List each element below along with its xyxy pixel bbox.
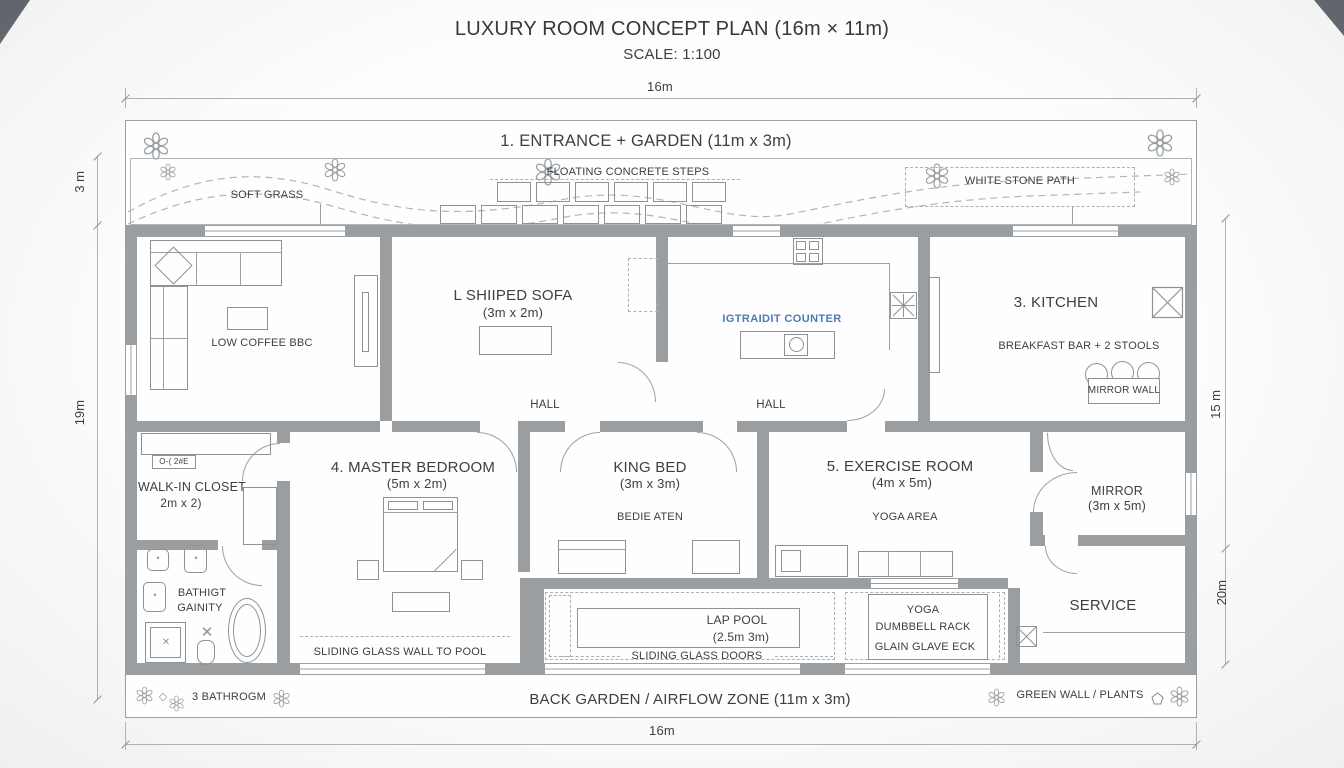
wall <box>520 578 544 663</box>
wall <box>125 663 300 675</box>
concrete-step <box>645 205 681 224</box>
service-title: SERVICE <box>1070 598 1137 615</box>
dim-line-left <box>97 156 98 700</box>
wall <box>125 225 137 345</box>
pentagon-icon <box>1151 692 1164 705</box>
photo-corner <box>0 0 30 44</box>
mirror-wall-label: MIRROR WALL <box>1088 385 1160 396</box>
dim-line-bottom <box>125 744 1197 745</box>
mirror-title: MIRROR <box>1091 485 1143 499</box>
column-x-icon <box>1016 626 1037 647</box>
leader-line <box>320 204 321 224</box>
wall <box>125 225 205 237</box>
back-garden-title: BACK GARDEN / AIRFLOW ZONE (11m x 3m) <box>529 692 850 709</box>
wall <box>125 395 137 675</box>
green-wall-label: GREEN WALL / PLANTS <box>1016 689 1143 701</box>
flower-icon <box>136 687 153 704</box>
wall <box>1185 225 1197 473</box>
pool-column <box>549 595 571 657</box>
bath-label-2: GAINITY <box>177 602 222 614</box>
bench-line <box>888 551 889 577</box>
flower-icon <box>1170 687 1189 706</box>
leader-line <box>1072 207 1073 225</box>
master-note: SLIDING GLASS WALL TO POOL <box>314 646 487 658</box>
window <box>871 578 958 589</box>
wall <box>380 225 392 421</box>
wall <box>737 421 847 432</box>
sink-basin <box>789 337 804 352</box>
master-title: 4. MASTER BEDROOM <box>331 460 495 477</box>
diamond-icon: ◇ <box>159 690 167 703</box>
drain-dot: • <box>156 553 159 563</box>
pool-title: LAP POOL <box>707 614 768 627</box>
stove-burner <box>796 253 806 262</box>
sofa-room-size: (3m x 2m) <box>483 306 543 320</box>
wall <box>518 432 530 572</box>
concrete-step <box>497 182 531 202</box>
stove-burner <box>809 253 819 262</box>
concrete-step <box>692 182 726 202</box>
flower-icon <box>1147 130 1173 156</box>
concrete-step <box>604 205 640 224</box>
wall <box>277 432 290 443</box>
sofa-line <box>150 338 188 339</box>
bathtub-inner <box>233 604 261 657</box>
cabinet <box>928 277 940 373</box>
dim-line-top <box>125 98 1197 99</box>
x-marker-icon: ✕ <box>162 637 170 648</box>
window <box>125 345 137 395</box>
dim-label-right-upper: 15 m <box>1208 390 1223 419</box>
king-note: BEDIE ATEN <box>617 511 683 523</box>
dim-label-right-lower: 20m <box>1214 580 1229 605</box>
doors-dash <box>775 656 833 657</box>
wall <box>277 481 290 663</box>
sofa-room-title: L SHIIPED SOFA <box>454 288 573 305</box>
king-size: (3m x 3m) <box>620 477 680 491</box>
closet-size: 2m x 2) <box>160 497 201 510</box>
bath-label-1: BATHIGT <box>178 587 226 599</box>
exercise-size: (4m x 5m) <box>872 476 932 490</box>
coffee-table <box>227 307 268 330</box>
wall <box>345 225 733 237</box>
photo-corner <box>1314 0 1344 36</box>
concrete-step <box>614 182 648 202</box>
bench <box>392 592 450 612</box>
window <box>733 225 780 237</box>
concrete-step <box>481 205 517 224</box>
unit-line <box>558 549 626 550</box>
kitchen-title: 3. KITCHEN <box>1014 295 1099 312</box>
wall <box>518 421 565 432</box>
flower-icon <box>988 689 1005 706</box>
flower-icon <box>324 159 346 181</box>
pillow <box>388 501 418 510</box>
wall <box>780 225 1013 237</box>
stove-burner <box>796 241 806 250</box>
wall <box>392 421 480 432</box>
concrete-step <box>653 182 687 202</box>
service-line <box>1043 632 1185 633</box>
flower-icon <box>160 164 176 180</box>
drain-dot: • <box>194 553 197 563</box>
hall-right-label: HALL <box>756 399 786 412</box>
doors-dash <box>560 656 620 657</box>
flower-icon <box>169 696 184 711</box>
wall <box>125 421 380 432</box>
window <box>1013 225 1118 237</box>
bedside-unit <box>558 540 626 574</box>
window <box>1185 473 1197 515</box>
page-title: LUXURY ROOM CONCEPT PLAN (16m × 11m) <box>455 18 889 40</box>
wall <box>1185 515 1197 675</box>
concrete-step <box>575 182 609 202</box>
concrete-step <box>563 205 599 224</box>
island-counter-label: IGTRAIDIT COUNTER <box>722 313 841 325</box>
sofa-line <box>196 252 197 286</box>
soft-grass-label: SOFT GRASS <box>231 189 304 201</box>
wall <box>1078 535 1185 546</box>
dim-label-bottom: 16m <box>649 724 675 738</box>
wall <box>757 432 769 580</box>
closet-tag: O-( 2#E <box>159 458 188 467</box>
coffee-table-label: LOW COFFEE BBC <box>211 337 312 349</box>
wall <box>485 663 545 675</box>
bench-line <box>920 551 921 577</box>
concrete-step <box>522 205 558 224</box>
exercise-title: 5. EXERCISE ROOM <box>827 459 974 476</box>
steps-guide <box>490 179 740 180</box>
rack-label-3: GLAIN GLAVE ECK <box>875 641 976 653</box>
wall <box>1030 432 1043 472</box>
concrete-step <box>686 205 722 224</box>
sliding-glass-wall <box>300 663 485 675</box>
dim-ext <box>125 722 126 750</box>
nightstand <box>357 560 379 580</box>
rack-label-2: DUMBBELL RACK <box>875 621 970 633</box>
nightstand <box>461 560 483 580</box>
bathroom-tag: 3 BATHROGM <box>192 691 266 703</box>
closet-shelf <box>141 433 271 455</box>
concrete-step <box>536 182 570 202</box>
dim-ext <box>1196 722 1197 750</box>
front-garden-title: 1. ENTRANCE + GARDEN (11m x 3m) <box>500 132 792 150</box>
sliding-glass-doors <box>545 663 800 675</box>
pool-size: (2.5m 3m) <box>713 631 769 644</box>
dim-label-left-lower: 19m <box>72 400 87 425</box>
wall <box>1030 535 1045 546</box>
closet-shelf <box>243 487 277 545</box>
rug <box>479 326 552 355</box>
toilet <box>197 640 215 665</box>
column-x-icon <box>1152 287 1183 318</box>
steps-label: FLOATING CONCRETE STEPS <box>547 166 710 178</box>
mirror-size: (3m x 5m) <box>1088 500 1146 514</box>
wall <box>885 421 1185 432</box>
page-subtitle: SCALE: 1:100 <box>623 47 720 64</box>
flower-icon <box>143 133 169 159</box>
stone-path-label: WHITE STONE PATH <box>965 175 1075 187</box>
vent-icon <box>890 292 917 319</box>
wall <box>600 421 703 432</box>
window <box>845 663 990 675</box>
drain-dot: • <box>153 590 156 600</box>
stove-burner <box>809 241 819 250</box>
sofa-line <box>240 252 241 286</box>
bed-headboard <box>383 512 458 513</box>
rack-label-1: YOGA <box>907 604 940 616</box>
concrete-step <box>440 205 476 224</box>
exercise-note: YOGA AREA <box>872 511 937 523</box>
weight-bench <box>858 551 953 577</box>
x-marker-icon: ✕ <box>201 623 214 641</box>
wall <box>990 663 1197 675</box>
pillow <box>423 501 453 510</box>
floor-plan-canvas: { "header": { "title": "LUXURY ROOM CONC… <box>0 0 1344 768</box>
wall <box>958 578 1008 589</box>
rack-divider <box>999 594 1000 658</box>
closet-title: WALK-IN CLOSET <box>138 481 246 495</box>
hall-left-label: HALL <box>530 399 560 412</box>
dim-label-left-upper: 3 m <box>72 171 87 193</box>
exercise-equipment-inner <box>781 550 801 572</box>
breakfast-bar-label: BREAKFAST BAR + 2 STOOLS <box>998 340 1159 352</box>
wall <box>544 578 871 589</box>
bedside-unit <box>692 540 740 574</box>
master-size: (5m x 2m) <box>387 477 447 491</box>
wall <box>800 663 845 675</box>
flower-icon <box>1164 169 1180 185</box>
flower-icon <box>273 690 290 707</box>
tv-cabinet-panel <box>362 292 369 352</box>
pool-doors-label: SLIDING GLASS DOORS <box>632 650 763 662</box>
fridge-outline <box>628 258 658 312</box>
king-title: KING BED <box>613 460 686 477</box>
window <box>205 225 345 237</box>
counter-edge <box>668 263 890 264</box>
dim-label-top: 16m <box>647 80 673 94</box>
glass-wall-line <box>300 636 510 637</box>
